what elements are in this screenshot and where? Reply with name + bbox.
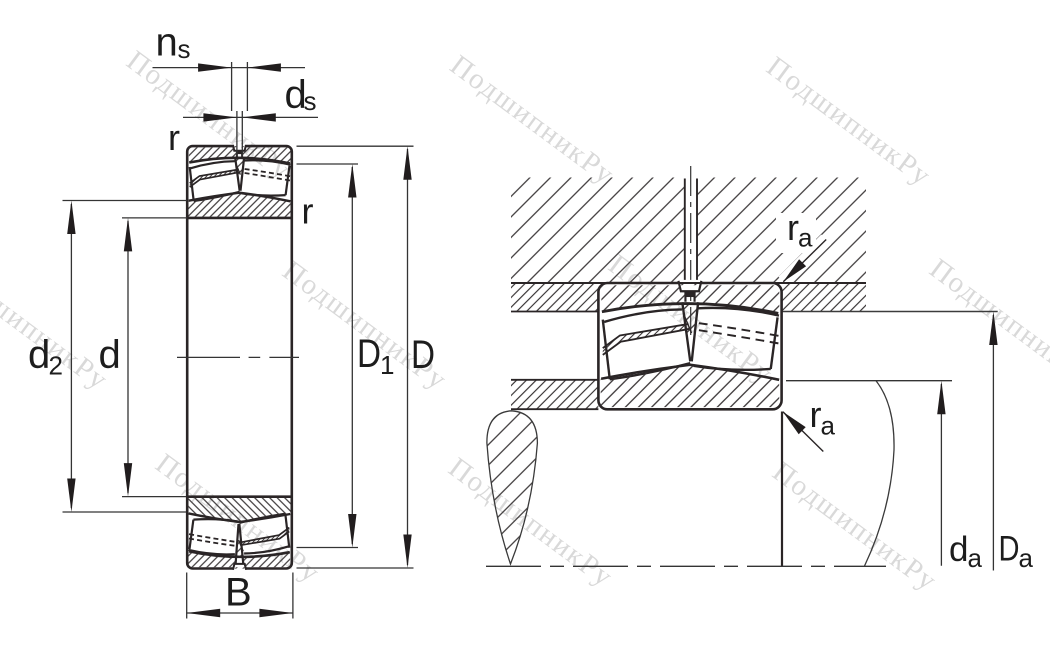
- svg-text:s: s: [304, 86, 317, 116]
- svg-text:B: B: [225, 571, 252, 615]
- svg-text:r: r: [302, 191, 314, 232]
- svg-text:n: n: [156, 21, 178, 65]
- svg-text:a: a: [1019, 543, 1034, 573]
- svg-text:r: r: [168, 117, 180, 158]
- svg-text:ПодшипникРу: ПодшипникРу: [767, 455, 944, 597]
- svg-text:d: d: [949, 530, 968, 569]
- svg-text:1: 1: [380, 350, 394, 380]
- svg-text:D: D: [411, 333, 435, 377]
- svg-text:D: D: [357, 332, 381, 376]
- svg-text:a: a: [798, 223, 813, 253]
- svg-text:a: a: [821, 411, 836, 441]
- svg-text:ПодшипникРу: ПодшипникРу: [444, 49, 621, 191]
- svg-text:2: 2: [49, 351, 63, 381]
- svg-text:ПодшипникРу: ПодшипникРу: [761, 50, 938, 192]
- svg-text:D: D: [999, 530, 1020, 569]
- svg-text:ПодшипникРу: ПодшипникРу: [924, 252, 1050, 394]
- svg-text:d: d: [28, 333, 50, 377]
- svg-text:s: s: [178, 34, 191, 64]
- svg-text:d: d: [99, 333, 121, 377]
- svg-text:a: a: [968, 543, 983, 573]
